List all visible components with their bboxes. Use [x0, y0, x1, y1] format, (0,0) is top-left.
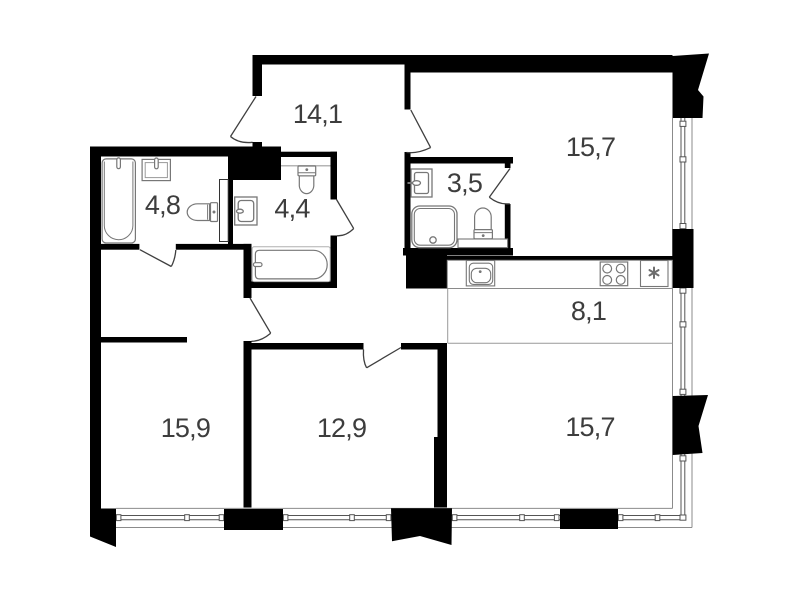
svg-text:8,1: 8,1 — [571, 296, 606, 326]
svg-text:4,4: 4,4 — [274, 194, 310, 224]
svg-text:15,7: 15,7 — [565, 412, 614, 442]
svg-text:14,1: 14,1 — [293, 99, 342, 129]
svg-text:12,9: 12,9 — [317, 413, 366, 443]
svg-text:15,9: 15,9 — [161, 413, 210, 443]
svg-text:4,8: 4,8 — [145, 190, 180, 220]
svg-text:3,5: 3,5 — [447, 168, 482, 198]
svg-text:15,7: 15,7 — [566, 132, 615, 162]
